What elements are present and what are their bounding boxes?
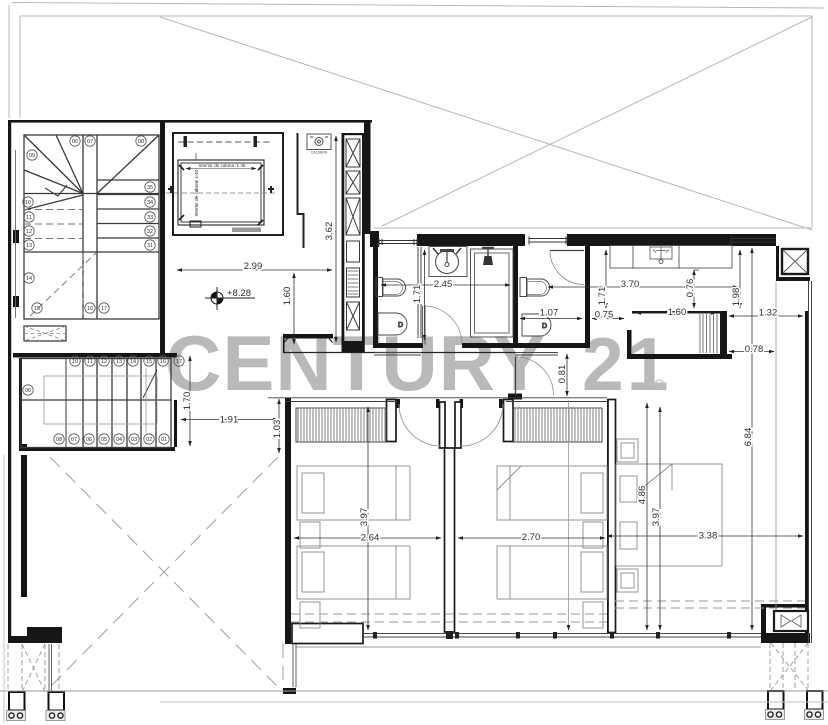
svg-text:07: 07 — [71, 437, 77, 443]
svg-text:D: D — [542, 323, 547, 330]
svg-text:16: 16 — [160, 359, 166, 365]
svg-text:33: 33 — [147, 215, 153, 221]
svg-text:3.38: 3.38 — [699, 531, 718, 542]
svg-text:11: 11 — [87, 359, 93, 365]
svg-text:15: 15 — [146, 359, 152, 365]
svg-text:13: 13 — [26, 243, 32, 249]
svg-text:11: 11 — [26, 215, 32, 221]
svg-text:1.32: 1.32 — [759, 308, 778, 319]
svg-text:02: 02 — [146, 437, 152, 443]
svg-text:D: D — [398, 322, 403, 329]
svg-text:+8.28: +8.28 — [227, 288, 251, 299]
svg-text:1.70: 1.70 — [182, 392, 193, 411]
svg-text:2.45: 2.45 — [434, 279, 453, 290]
svg-text:17: 17 — [101, 306, 107, 312]
svg-text:05: 05 — [101, 437, 107, 443]
svg-text:17: 17 — [176, 359, 182, 365]
svg-text:15: 15 — [34, 306, 40, 312]
svg-text:1.71: 1.71 — [412, 285, 423, 304]
svg-text:1.91: 1.91 — [220, 415, 239, 426]
svg-text:12: 12 — [101, 359, 107, 365]
svg-text:07: 07 — [87, 139, 93, 145]
svg-text:4.86: 4.86 — [637, 486, 648, 505]
svg-text:6.84: 6.84 — [743, 428, 754, 447]
svg-text:10: 10 — [72, 359, 78, 365]
svg-text:1.71: 1.71 — [597, 287, 608, 306]
svg-text:3.97: 3.97 — [359, 508, 370, 527]
svg-text:09: 09 — [29, 153, 35, 159]
svg-text:16: 16 — [87, 306, 93, 312]
svg-text:06: 06 — [72, 139, 78, 145]
svg-text:35: 35 — [147, 185, 153, 191]
svg-text:13: 13 — [116, 359, 122, 365]
svg-text:10: 10 — [25, 200, 31, 206]
svg-text:06: 06 — [25, 388, 31, 394]
svg-text:3.70: 3.70 — [621, 279, 640, 290]
svg-text:2.64: 2.64 — [361, 533, 380, 544]
svg-text:1.07: 1.07 — [540, 308, 559, 319]
svg-text:R: R — [657, 383, 662, 389]
svg-text:3.62: 3.62 — [324, 222, 335, 241]
svg-text:31: 31 — [147, 243, 153, 249]
svg-text:32: 32 — [147, 229, 153, 235]
svg-text:12: 12 — [26, 229, 32, 235]
svg-text:0.81: 0.81 — [557, 365, 568, 384]
svg-text:2.99: 2.99 — [244, 261, 263, 272]
svg-text:1.60: 1.60 — [668, 307, 687, 318]
svg-text:1.98: 1.98 — [731, 288, 742, 307]
svg-text:03: 03 — [131, 437, 137, 443]
svg-text:14: 14 — [26, 276, 32, 282]
svg-text:CENTURY: CENTURY — [165, 319, 546, 407]
svg-text:3.97: 3.97 — [651, 508, 662, 527]
svg-text:CALDERA: CALDERA — [311, 151, 328, 155]
svg-text:08: 08 — [56, 437, 62, 443]
svg-text:1.03: 1.03 — [272, 420, 283, 439]
svg-text:0.78: 0.78 — [745, 344, 764, 355]
svg-text:14: 14 — [130, 359, 136, 365]
svg-text:04: 04 — [116, 437, 122, 443]
svg-text:34: 34 — [147, 200, 153, 206]
svg-text:08: 08 — [138, 139, 144, 145]
svg-text:0.75: 0.75 — [595, 310, 614, 321]
svg-text:06: 06 — [86, 437, 92, 443]
svg-text:1.60: 1.60 — [282, 287, 293, 306]
svg-text:Interior de cabina: 1.10: Interior de cabina: 1.10 — [194, 169, 199, 216]
svg-text:0.76: 0.76 — [685, 279, 696, 298]
svg-text:2.70: 2.70 — [522, 532, 541, 543]
svg-text:01: 01 — [161, 437, 167, 443]
svg-text:21: 21 — [582, 322, 671, 406]
svg-text:Interior de cabina: 1.45: Interior de cabina: 1.45 — [199, 163, 246, 168]
